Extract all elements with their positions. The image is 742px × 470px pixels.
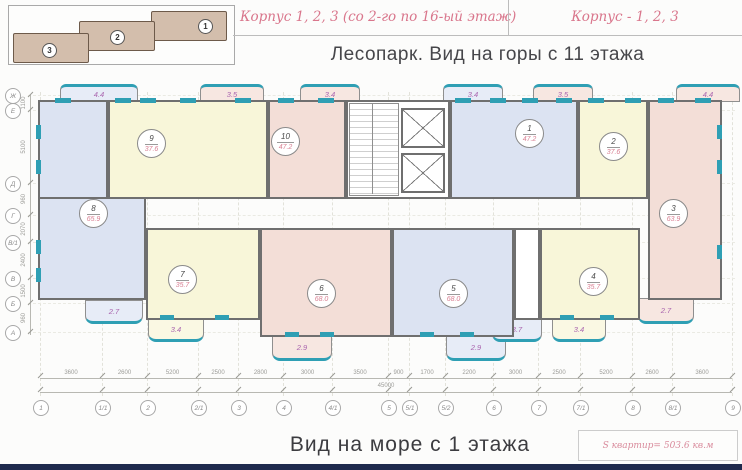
axis-marker-left: Г (5, 208, 21, 224)
window-marker (160, 315, 174, 320)
dimension-number: 1100 (21, 96, 27, 109)
header-rule (233, 35, 742, 36)
apartment-number: 2 (607, 138, 619, 148)
axis-marker-left: В/1 (5, 235, 21, 251)
window-marker (556, 98, 572, 103)
key-plan-block-1: 1 (151, 11, 227, 41)
axis-marker-bottom: 8/1 (665, 400, 681, 416)
axis-marker-bottom: 8 (625, 400, 641, 416)
key-plan-block-3: 3 (13, 33, 89, 63)
dimension-number: 2600 (118, 370, 131, 376)
apartment-number: 4 (587, 273, 599, 283)
window-marker (560, 315, 574, 320)
window-marker (55, 98, 71, 103)
mountains-view-subtitle: Лесопарк. Вид на горы с 11 этажа (233, 44, 742, 66)
apartment-number: 1 (523, 125, 535, 135)
dimension-number: 1500 (21, 284, 27, 297)
axis-marker-bottom: 7/1 (573, 400, 589, 416)
window-marker (320, 332, 334, 337)
axis-marker-bottom: 4 (276, 400, 292, 416)
dimension-number: 1700 (420, 370, 433, 376)
korpus-right-title: Корпус - 1, 2, 3 (508, 9, 742, 25)
total-area-box: S квартир= 503.6 кв.м (578, 430, 738, 461)
apartment-label: 937.6 (137, 129, 166, 158)
window-marker (625, 98, 641, 103)
balcony: 3.4 (148, 318, 204, 342)
dimension-number: 2200 (462, 370, 475, 376)
apartment-label: 735.7 (168, 265, 197, 294)
dimension-number: 3000 (301, 370, 314, 376)
apartment-label: 1047.2 (271, 127, 300, 156)
dimension-number: 2600 (645, 370, 658, 376)
balcony: 2.7 (85, 300, 143, 324)
window-marker (36, 160, 41, 174)
dimension-number: 5200 (166, 370, 179, 376)
axis-marker-left: Д (5, 176, 21, 192)
window-marker (140, 98, 156, 103)
apartment-label: 668.0 (307, 279, 336, 308)
window-marker (318, 98, 334, 103)
dimension-number: 2800 (254, 370, 267, 376)
axis-marker-bottom: 5 (381, 400, 397, 416)
apartment-area: 47.2 (279, 143, 293, 151)
axis-marker-left: Б (5, 296, 21, 312)
floor-plan-sheet: 1 2 3 Корпус 1, 2, 3 (со 2-го по 16-ый э… (0, 0, 742, 470)
apartment-number: 5 (447, 285, 459, 295)
apartment-label: 568.0 (439, 279, 468, 308)
korpus-left-title: Корпус 1, 2, 3 (со 2-го по 16-ый этаж) (240, 9, 502, 25)
window-marker (115, 98, 131, 103)
axis-marker-left: Е (5, 103, 21, 119)
window-marker (490, 98, 506, 103)
dimension-number: 3600 (695, 370, 708, 376)
dimension-number: 5200 (599, 370, 612, 376)
window-marker (600, 315, 614, 320)
elevator-shaft (401, 108, 445, 148)
key-plan-box: 1 2 3 (8, 5, 235, 65)
key-plan-block-number: 2 (110, 30, 125, 45)
window-marker (420, 332, 434, 337)
apartment-area: 68.0 (315, 295, 329, 303)
apartment-area: 37.6 (607, 148, 621, 156)
axis-marker-bottom: 4/1 (325, 400, 341, 416)
dimension-number: 960 (21, 194, 27, 204)
balcony: 2.9 (272, 335, 332, 361)
balcony: 2.7 (638, 298, 694, 324)
window-marker (695, 98, 711, 103)
window-marker (278, 98, 294, 103)
apartment-number: 10 (277, 133, 294, 143)
window-marker (36, 240, 41, 254)
window-marker (658, 98, 674, 103)
apartment-area: 35.7 (587, 283, 601, 291)
apartment-area: 37.6 (145, 145, 159, 153)
key-plan-block-number: 1 (198, 19, 213, 34)
staircase-divider (372, 103, 373, 194)
axis-marker-bottom: 1 (33, 400, 49, 416)
apartment-number: 8 (87, 205, 99, 215)
apartment-unit (648, 100, 722, 300)
window-marker (180, 98, 196, 103)
axis-marker-left: А (5, 325, 21, 341)
window-marker (522, 98, 538, 103)
window-marker (455, 98, 471, 103)
axis-marker-bottom: 2 (140, 400, 156, 416)
apartment-number: 7 (176, 271, 188, 281)
window-marker (235, 98, 251, 103)
axis-marker-left: В (5, 271, 21, 287)
dimension-number: 3600 (64, 370, 77, 376)
window-marker (717, 245, 722, 259)
dimension-number: 2070 (21, 222, 27, 235)
window-marker (460, 332, 474, 337)
axis-marker-bottom: 7 (531, 400, 547, 416)
balcony: 3.4 (552, 318, 606, 342)
dimension-number: 2500 (211, 370, 224, 376)
apartment-label: 435.7 (579, 267, 608, 296)
apartment-area: 47.2 (523, 135, 537, 143)
key-plan-block-number: 3 (42, 43, 57, 58)
window-marker (285, 332, 299, 337)
apartment-area: 35.7 (176, 281, 190, 289)
dimension-number: 2400 (21, 253, 27, 266)
staircase (349, 103, 399, 196)
dimension-number: 900 (393, 370, 403, 376)
dimension-number: 3500 (353, 370, 366, 376)
dimension-number: 960 (21, 312, 27, 322)
window-marker (717, 125, 722, 139)
apartment-label: 363.9 (659, 199, 688, 228)
apartment-area: 63.9 (667, 215, 681, 223)
apartment-label: 865.9 (79, 199, 108, 228)
grid-line-v (732, 92, 733, 396)
apartment-unit (514, 228, 540, 320)
apartment-unit (108, 100, 268, 199)
bottom-strip (0, 464, 742, 470)
apartment-area: 68.0 (447, 295, 461, 303)
apartment-label: 237.6 (599, 132, 628, 161)
key-plan-block-2: 2 (79, 21, 155, 51)
window-marker (36, 125, 41, 139)
axis-marker-bottom: 2/1 (191, 400, 207, 416)
dimension-number: 45000 (378, 383, 395, 389)
elevator-shaft (401, 153, 445, 193)
window-marker (215, 315, 229, 320)
window-marker (717, 160, 722, 174)
axis-marker-bottom: 5/1 (402, 400, 418, 416)
dimension-number: 2500 (552, 370, 565, 376)
dimension-number: 5100 (21, 140, 27, 153)
apartment-area: 65.9 (87, 215, 101, 223)
axis-marker-bottom: 9 (725, 400, 741, 416)
apartment-unit (38, 100, 108, 200)
apartment-unit (450, 100, 578, 199)
axis-marker-bottom: 5/2 (438, 400, 454, 416)
dimension-number: 3000 (509, 370, 522, 376)
window-marker (36, 268, 41, 282)
axis-marker-left: Ж (5, 88, 21, 104)
axis-marker-bottom: 3 (231, 400, 247, 416)
apartment-number: 3 (667, 205, 679, 215)
apartment-unit (146, 228, 260, 320)
axis-marker-bottom: 6 (486, 400, 502, 416)
axis-marker-bottom: 1/1 (95, 400, 111, 416)
window-marker (588, 98, 604, 103)
apartment-number: 9 (145, 135, 157, 145)
apartment-label: 147.2 (515, 119, 544, 148)
apartment-number: 6 (315, 285, 327, 295)
